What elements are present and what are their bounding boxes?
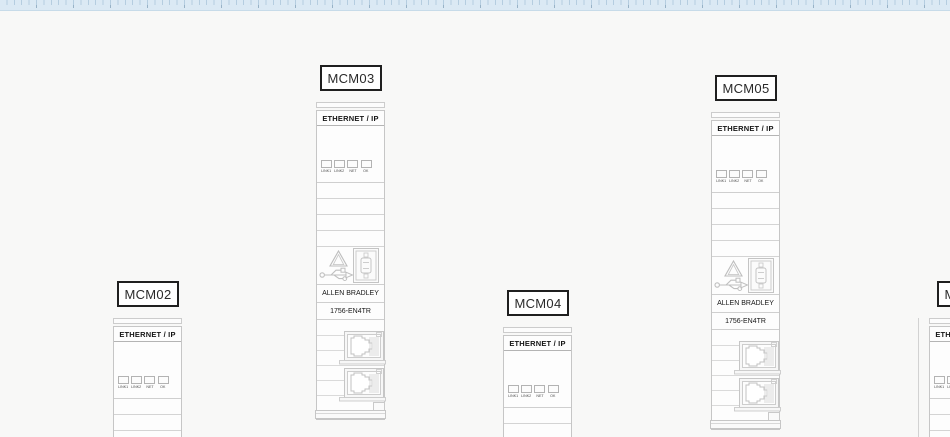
module-header: ETHERNET / IP	[712, 121, 779, 136]
module-top-strip	[113, 318, 182, 324]
ethernet-port-icon	[734, 378, 781, 412]
led-section: LINK1 LINK2 NET OK	[930, 342, 950, 399]
led-indicator	[756, 170, 767, 178]
led-section: LINK1 LINK2 NET OK	[504, 351, 571, 408]
module-header-label: ETHERNET / IP	[935, 330, 950, 339]
led-label: OK	[550, 394, 555, 398]
body-row	[930, 431, 950, 437]
module-mcm02[interactable]: MCM02 ETHERNET / IP LINK1 LINK2	[113, 318, 182, 437]
led-section: LINK1 LINK2 NET OK	[712, 136, 779, 193]
led-link1: LINK1	[507, 385, 520, 403]
led-indicator	[158, 376, 169, 384]
body-row	[712, 193, 779, 209]
led-link2: LINK2	[520, 385, 533, 403]
body-row	[317, 199, 384, 215]
led-label: NET	[536, 394, 543, 398]
led-net: NET	[533, 385, 546, 403]
horizontal-ruler[interactable]	[0, 0, 950, 11]
sd-card-icon	[353, 248, 379, 283]
led-row: LINK1 LINK2 NET OK	[507, 385, 560, 403]
led-indicator	[144, 376, 155, 384]
led-label: LINK1	[935, 385, 945, 389]
body-rows	[114, 399, 181, 437]
led-label: LINK2	[335, 169, 345, 173]
module-footer	[315, 410, 386, 419]
led-link1: LINK1	[933, 376, 946, 394]
led-label: OK	[758, 179, 763, 183]
module-tag-label: MCM02	[124, 287, 171, 302]
body-rows	[317, 183, 384, 247]
led-label: NET	[146, 385, 153, 389]
module-top-strip	[929, 318, 950, 324]
brand-label: ALLEN BRADLEY	[717, 300, 774, 307]
led-label: OK	[160, 385, 165, 389]
sd-card-icon	[748, 258, 774, 293]
led-indicator	[716, 170, 727, 178]
led-indicator	[118, 376, 129, 384]
body-row	[114, 399, 181, 415]
body-row	[114, 431, 181, 437]
brand-label: ALLEN BRADLEY	[322, 290, 379, 297]
usb-icon	[714, 274, 751, 291]
module-header: ETHERNET / IP	[114, 327, 181, 342]
model-label: 1756-EN4TR	[330, 308, 371, 315]
icon-zone	[712, 257, 779, 295]
module-body[interactable]: ETHERNET / IP LINK1 LINK2 NET	[929, 326, 950, 437]
module-footer	[710, 420, 781, 429]
body-row	[317, 231, 384, 247]
module-header-label: ETHERNET / IP	[717, 124, 773, 133]
module-top-strip	[503, 327, 572, 333]
led-link2: LINK2	[333, 160, 346, 178]
body-rows	[930, 399, 950, 437]
module-top-strip	[711, 112, 780, 118]
led-indicator	[934, 376, 945, 384]
led-indicator	[729, 170, 740, 178]
led-net: NET	[741, 170, 754, 188]
body-row	[317, 215, 384, 231]
led-label: LINK2	[522, 394, 532, 398]
ethernet-port-icon	[339, 331, 386, 365]
body-row	[712, 209, 779, 225]
led-link1: LINK1	[117, 376, 130, 394]
module-tag-box[interactable]: MCM02	[117, 281, 179, 307]
led-indicator	[508, 385, 519, 393]
module-tag-box[interactable]: MCM04	[507, 290, 569, 316]
led-link2: LINK2	[130, 376, 143, 394]
module-body[interactable]: ETHERNET / IP LINK1 LINK2 NET	[503, 335, 572, 437]
led-indicator	[347, 160, 358, 168]
body-rows	[504, 408, 571, 437]
led-label: LINK1	[322, 169, 332, 173]
module-header: ETHERNET / IP	[930, 327, 950, 342]
module-mcm03[interactable]: MCM03 ETHERNET / IP LINK1 LINK2	[316, 102, 385, 420]
ethernet-port-icon	[339, 368, 386, 402]
body-row	[317, 183, 384, 199]
led-indicator	[534, 385, 545, 393]
led-ok: OK	[546, 385, 560, 403]
led-ok: OK	[156, 376, 170, 394]
led-label: LINK1	[119, 385, 129, 389]
led-link2: LINK2	[728, 170, 741, 188]
led-indicator	[321, 160, 332, 168]
led-label: LINK2	[132, 385, 142, 389]
drawing-canvas[interactable]: MCM02 ETHERNET / IP LINK1 LINK2	[0, 0, 950, 437]
led-ok: OK	[754, 170, 768, 188]
module-tag-label: MCM05	[722, 81, 769, 96]
module-body[interactable]: ETHERNET / IP LINK1 LINK2 NET	[711, 120, 780, 430]
body-row	[930, 399, 950, 415]
led-indicator	[361, 160, 372, 168]
module-header: ETHERNET / IP	[504, 336, 571, 351]
body-row	[504, 424, 571, 437]
module-mcm05[interactable]: MCM05 ETHERNET / IP LINK1 LINK2	[711, 112, 780, 430]
led-section: LINK1 LINK2 NET OK	[317, 126, 384, 183]
led-row: LINK1 LINK2 NET OK	[117, 376, 170, 394]
body-row	[712, 225, 779, 241]
led-label: LINK1	[509, 394, 519, 398]
body-row	[504, 408, 571, 424]
module-header: ETHERNET / IP	[317, 111, 384, 126]
module-mcm06[interactable]: MCM06 ETHERNET / IP LINK1 LINK2	[929, 318, 950, 437]
ports-zone	[317, 320, 384, 413]
module-tag-box[interactable]: MCM03	[320, 65, 382, 91]
led-indicator	[521, 385, 532, 393]
led-row: LINK1 LINK2 NET OK	[320, 160, 373, 178]
body-row	[712, 241, 779, 257]
model-row: 1756-EN4TR	[712, 313, 779, 330]
module-top-strip	[316, 102, 385, 108]
module-tag-label: MCM04	[514, 296, 561, 311]
led-section: LINK1 LINK2 NET OK	[114, 342, 181, 399]
body-row	[930, 415, 950, 431]
led-label: NET	[349, 169, 356, 173]
model-row: 1756-EN4TR	[317, 303, 384, 320]
led-row: LINK1 LINK2 NET OK	[715, 170, 768, 188]
module-tag-label: MCM03	[327, 71, 374, 86]
led-label: LINK1	[717, 179, 727, 183]
icon-zone	[317, 247, 384, 285]
usb-icon	[319, 264, 356, 281]
led-label: NET	[744, 179, 751, 183]
module-tag-label: MCM06	[944, 287, 950, 302]
led-indicator	[742, 170, 753, 178]
led-link1: LINK1	[715, 170, 728, 188]
brand-row: ALLEN BRADLEY	[317, 285, 384, 303]
led-ok: OK	[359, 160, 373, 178]
led-net: NET	[143, 376, 156, 394]
led-net: NET	[346, 160, 359, 178]
brand-row: ALLEN BRADLEY	[712, 295, 779, 313]
led-label: OK	[363, 169, 368, 173]
module-body[interactable]: ETHERNET / IP LINK1 LINK2 NET	[113, 326, 182, 437]
led-indicator	[131, 376, 142, 384]
module-header-label: ETHERNET / IP	[119, 330, 175, 339]
model-label: 1756-EN4TR	[725, 318, 766, 325]
module-tag-box[interactable]: MCM06	[937, 281, 950, 307]
led-indicator	[334, 160, 345, 168]
body-row	[114, 415, 181, 431]
body-rows	[712, 193, 779, 257]
partial-module-edge-line	[918, 318, 919, 437]
module-header-label: ETHERNET / IP	[322, 114, 378, 123]
module-body[interactable]: ETHERNET / IP LINK1 LINK2 NET	[316, 110, 385, 420]
led-row: LINK1 LINK2 NET OK	[933, 376, 950, 394]
led-link1: LINK1	[320, 160, 333, 178]
led-label: LINK2	[730, 179, 740, 183]
module-header-label: ETHERNET / IP	[509, 339, 565, 348]
ethernet-port-icon	[734, 341, 781, 375]
module-mcm04[interactable]: MCM04 ETHERNET / IP LINK1 LINK2	[503, 327, 572, 437]
ports-zone	[712, 330, 779, 423]
module-tag-box[interactable]: MCM05	[715, 75, 777, 101]
led-indicator	[548, 385, 559, 393]
led-link2: LINK2	[946, 376, 950, 394]
